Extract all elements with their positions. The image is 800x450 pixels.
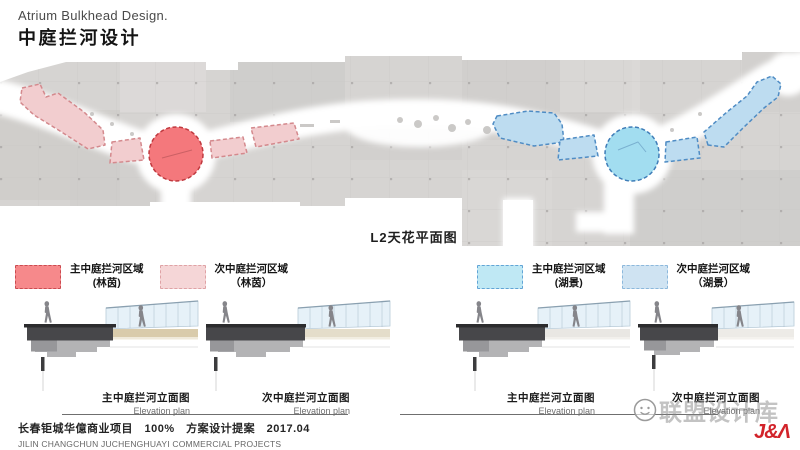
company-logo: J&Λ — [754, 421, 790, 444]
plan-label: L2天花平面图 — [352, 227, 476, 246]
elevation-caption-1: 主中庭拦河立面图 Elevation plan — [60, 390, 190, 416]
elevation-drawing-sub-forest — [206, 297, 392, 391]
elevation-caption-2: 次中庭拦河立面图 Elevation plan — [220, 390, 350, 416]
legend-item: 主中庭拦河区域 (林茵) — [15, 263, 144, 290]
legend-item: 次中庭拦河区域 （湖景） — [622, 263, 751, 290]
legend-swatch-sub-forest — [160, 265, 206, 289]
presentation-slide: Atrium Bulkhead Design. 中庭拦河设计 — [0, 0, 800, 450]
legend-item: 主中庭拦河区域 (湖景) — [477, 263, 606, 290]
legend-label: 主中庭拦河区域 (湖景) — [532, 263, 606, 290]
elevation-caption-3: 主中庭拦河立面图 Elevation plan — [465, 390, 595, 416]
legend-lake: 主中庭拦河区域 (湖景) 次中庭拦河区域 （湖景） — [477, 263, 750, 290]
legend-swatch-main-forest — [15, 265, 61, 289]
legend-forest: 主中庭拦河区域 (林茵) 次中庭拦河区域 （林茵） — [15, 263, 288, 290]
main-atrium-lake-circle — [605, 127, 659, 181]
person-silhouette — [223, 301, 230, 323]
elevation-drawing-main-forest — [14, 297, 200, 391]
title-chinese: 中庭拦河设计 — [18, 24, 168, 50]
sub-atrium-forest-region-2 — [110, 138, 144, 163]
elevation-drawing-main-lake — [446, 297, 632, 391]
person-silhouette — [45, 301, 52, 323]
title-english: Atrium Bulkhead Design. — [18, 8, 168, 23]
person-silhouette — [477, 301, 484, 323]
caption-underline-left — [62, 414, 348, 415]
project-title-english: JILIN CHANGCHUN JUCHENGHUAYI COMMERCIAL … — [18, 439, 310, 449]
legend-label: 主中庭拦河区域 (林茵) — [70, 263, 144, 290]
legend-label: 次中庭拦河区域 （湖景） — [677, 263, 751, 290]
watermark-face-icon — [632, 397, 658, 423]
footer: 长春钜城华億商业项目 100% 方案设计提案 2017.04 JILIN CHA… — [18, 420, 310, 449]
legend-swatch-sub-lake — [622, 265, 668, 289]
legend-swatch-main-lake — [477, 265, 523, 289]
person-silhouette — [655, 301, 662, 323]
elevation-drawing-sub-lake — [616, 297, 796, 391]
project-title-chinese: 长春钜城华億商业项目 100% 方案设计提案 2017.04 — [18, 420, 310, 436]
page-title: Atrium Bulkhead Design. 中庭拦河设计 — [18, 8, 168, 50]
legend-label: 次中庭拦河区域 （林茵） — [215, 263, 289, 290]
legend-item: 次中庭拦河区域 （林茵） — [160, 263, 289, 290]
